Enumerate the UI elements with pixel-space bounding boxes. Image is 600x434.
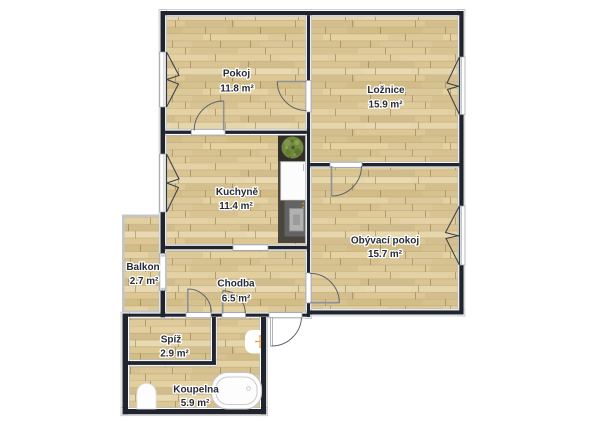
svg-text:Ložnice: Ložnice: [367, 85, 405, 96]
svg-text:Balkon: Balkon: [126, 262, 159, 273]
svg-text:Pokoj: Pokoj: [223, 69, 250, 80]
svg-text:11.8 m²: 11.8 m²: [220, 84, 254, 95]
svg-text:2.9 m²: 2.9 m²: [160, 349, 189, 360]
svg-text:Obývací pokoj: Obývací pokoj: [351, 235, 420, 246]
svg-text:Chodba: Chodba: [217, 279, 255, 290]
svg-text:Koupelna: Koupelna: [173, 385, 219, 396]
svg-text:5.9 m²: 5.9 m²: [181, 398, 210, 409]
svg-text:Spíž: Spíž: [161, 335, 182, 346]
svg-text:Kuchyně: Kuchyně: [216, 187, 259, 198]
svg-text:15.7 m²: 15.7 m²: [368, 249, 403, 260]
svg-text:15.9 m²: 15.9 m²: [368, 100, 403, 111]
svg-text:6.5 m²: 6.5 m²: [222, 294, 251, 305]
svg-text:2.7 m²: 2.7 m²: [130, 276, 159, 287]
svg-text:11.4 m²: 11.4 m²: [219, 201, 253, 212]
